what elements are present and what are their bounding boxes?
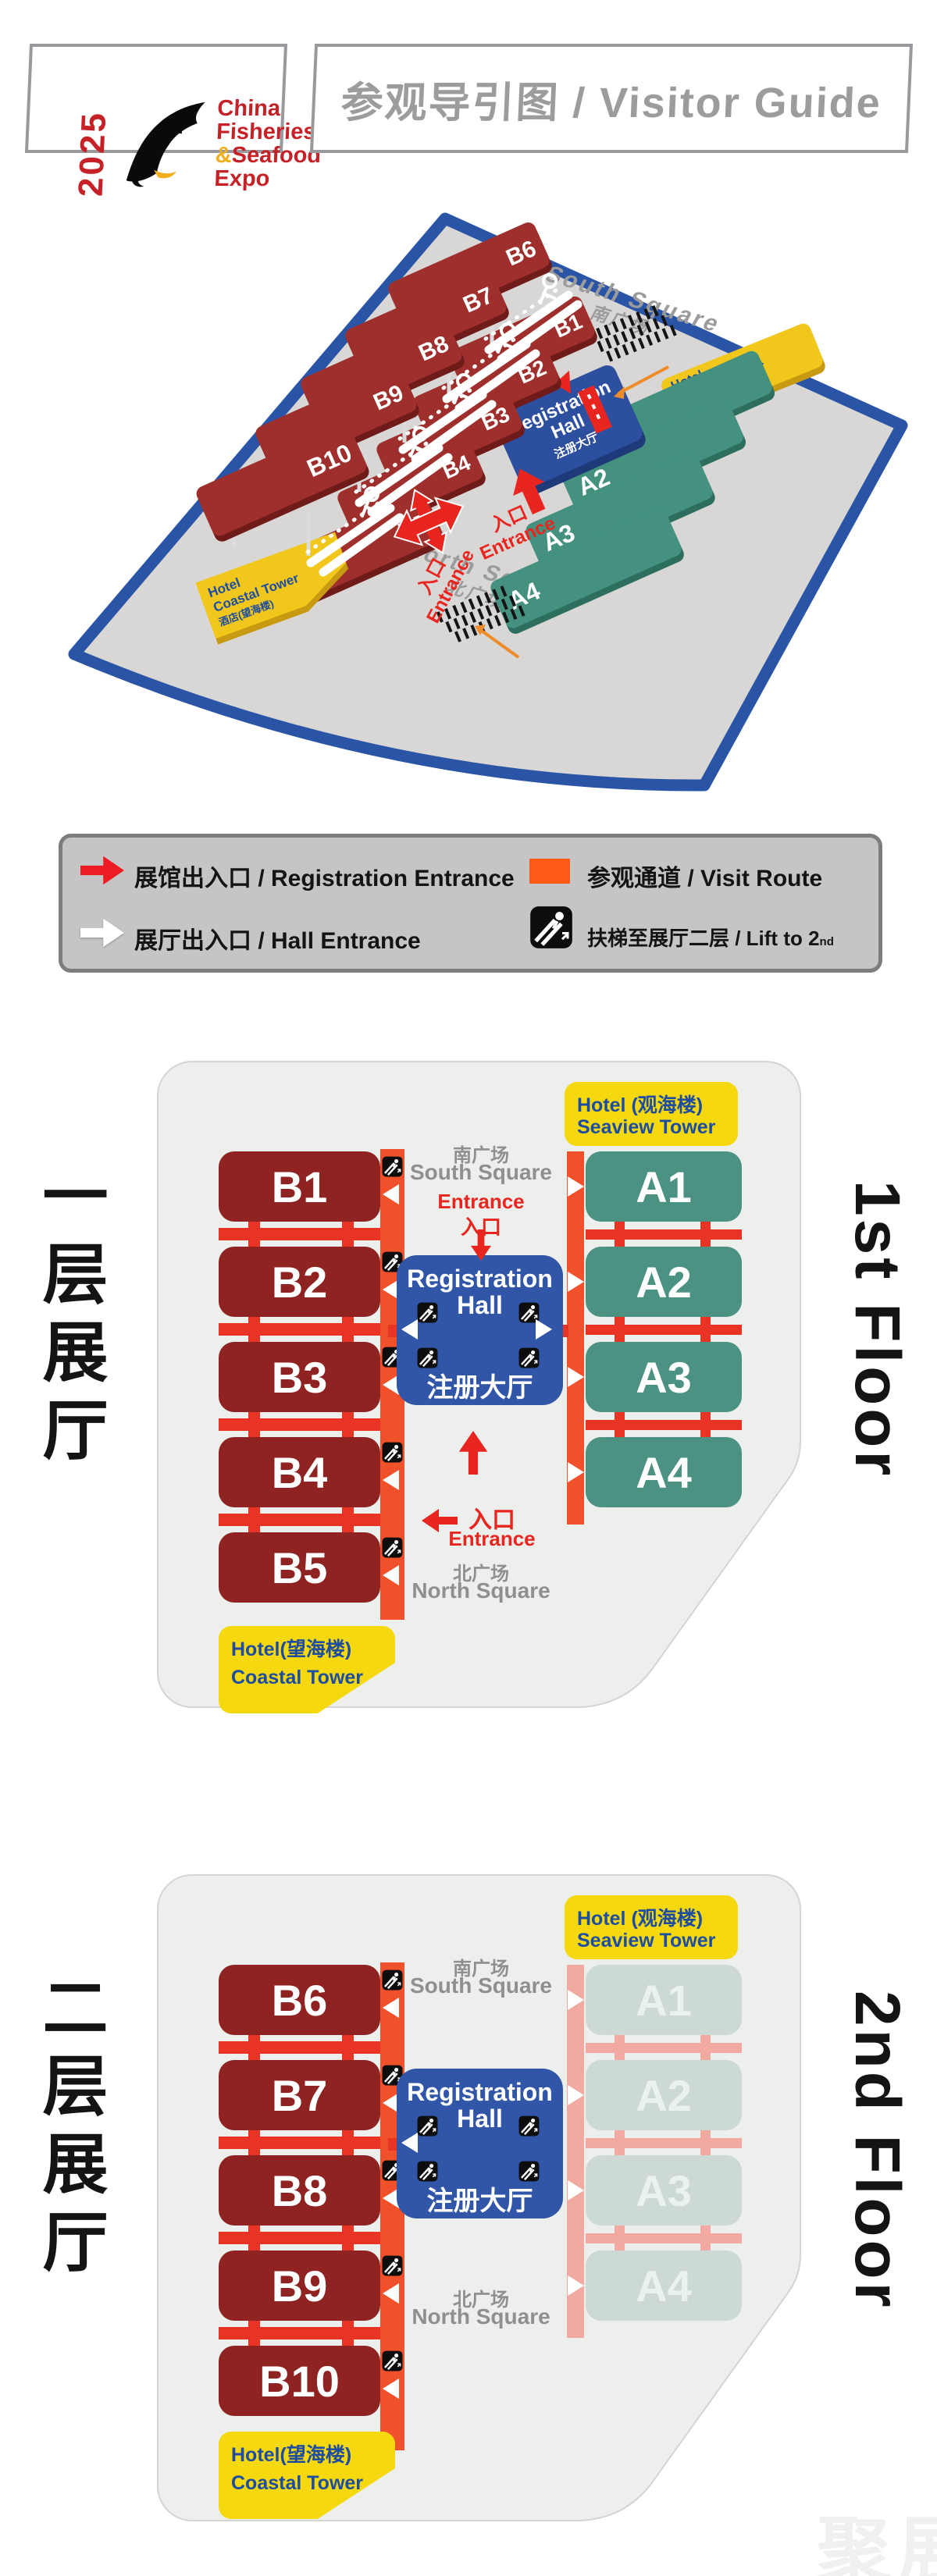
escalator-icon bbox=[518, 2161, 540, 2182]
floor1-hall-b4: B4 bbox=[219, 1437, 380, 1507]
floor1-south-square-en: South Square bbox=[403, 1160, 559, 1185]
floor1-hall-a1: A1 bbox=[586, 1151, 742, 1222]
floor1-hall-b3: B3 bbox=[219, 1342, 380, 1412]
floor1-hall-a3: A3 bbox=[586, 1342, 742, 1412]
floor1-hall-a4: A4 bbox=[586, 1437, 742, 1507]
watermark: 聚展 bbox=[817, 2492, 937, 2576]
floor1-hall-b2: B2 bbox=[219, 1247, 380, 1317]
legend-visit-route-label: 参观通道 / Visit Route bbox=[587, 859, 822, 893]
escalator-icon bbox=[417, 1302, 438, 1323]
hall-entrance-arrow bbox=[383, 2379, 399, 2399]
floor1-hotel-coastal: Hotel(望海楼) Coastal Tower bbox=[219, 1626, 395, 1713]
floor2-south-square-en: South Square bbox=[403, 1973, 559, 1998]
escalator-icon bbox=[382, 2255, 403, 2276]
connector bbox=[219, 1514, 380, 1526]
floor2-hall-a1: A1 bbox=[586, 1965, 742, 2035]
escalator-icon bbox=[382, 1156, 403, 1177]
connector bbox=[586, 1229, 742, 1240]
registration-label-en1: Registration bbox=[397, 2078, 563, 2107]
floor1-side-label: 一层展厅 bbox=[23, 1162, 118, 1474]
overview-3d-map: South Square 南广场 North Square 北广场 Hotel … bbox=[0, 0, 937, 827]
connector bbox=[219, 2327, 380, 2339]
floor2-hotel-seaview: Hotel (观海楼) Seaview Tower bbox=[565, 1895, 738, 1959]
hall-entrance-arrow bbox=[568, 1462, 584, 1482]
registration-label-zh: 注册大厅 bbox=[397, 2179, 563, 2218]
floor1-hall-a2: A2 bbox=[586, 1247, 742, 1317]
registration-label-en1: Registration bbox=[397, 1265, 563, 1293]
connector bbox=[219, 2041, 380, 2054]
floor1-north-square-en: North Square bbox=[403, 1578, 559, 1603]
escalator-icon bbox=[417, 2161, 438, 2182]
legend-hall-entrance-label: 展厅出入口 / Hall Entrance bbox=[134, 921, 421, 955]
floor2-side-label: 二层展厅 bbox=[23, 1973, 118, 2286]
connector bbox=[219, 2232, 380, 2244]
escalator-icon bbox=[382, 1442, 403, 1463]
hall-entrance-arrow bbox=[383, 2283, 399, 2304]
north-entrance-arrow-up bbox=[458, 1431, 488, 1475]
connector bbox=[586, 1420, 742, 1430]
hall-entrance-arrow bbox=[383, 1470, 399, 1490]
legend-visit-route-icon bbox=[529, 859, 570, 884]
hall-entrance-arrow bbox=[536, 1319, 552, 1340]
hall-entrance-arrow bbox=[568, 1990, 584, 2010]
hall-entrance-arrow bbox=[568, 1367, 584, 1387]
floor2-hall-b7: B7 bbox=[219, 2060, 380, 2130]
escalator-icon bbox=[382, 2350, 403, 2371]
connector bbox=[586, 2138, 742, 2148]
escalator-icon bbox=[417, 1347, 438, 1368]
floor2-hall-a2: A2 bbox=[586, 2060, 742, 2130]
connector bbox=[219, 1228, 380, 1240]
connector bbox=[586, 2043, 742, 2053]
hall-entrance-arrow bbox=[568, 2180, 584, 2201]
floor2-hotel-coastal: Hotel(望海楼) Coastal Tower bbox=[219, 2432, 395, 2519]
south-entrance-arrow-down bbox=[469, 1229, 493, 1261]
floor1-hall-b1: B1 bbox=[219, 1151, 380, 1222]
floor2-floor-label: 2nd Floor bbox=[840, 1991, 914, 2311]
escalator-icon bbox=[382, 1537, 403, 1558]
legend-escalator-icon bbox=[529, 906, 573, 949]
hall-entrance-arrow bbox=[383, 1184, 399, 1204]
registration-label-zh: 注册大厅 bbox=[397, 1366, 563, 1404]
hall-entrance-arrow bbox=[383, 1565, 399, 1585]
floor2-hall-b6: B6 bbox=[219, 1965, 380, 2035]
hall-entrance-arrow bbox=[401, 1319, 418, 1340]
visitor-guide-poster: 2025 China Fisheries &Seafood Expo 参观导引图… bbox=[0, 0, 937, 2576]
connector bbox=[586, 2233, 742, 2243]
connector bbox=[586, 1325, 742, 1335]
legend-registration-entrance-label: 展馆出入口 / Registration Entrance bbox=[134, 859, 515, 893]
hall-entrance-arrow bbox=[568, 2085, 584, 2105]
floor1-hall-b5: B5 bbox=[219, 1532, 380, 1603]
floor1-hotel-seaview: Hotel (观海楼) Seaview Tower bbox=[565, 1082, 738, 1146]
hall-entrance-arrow bbox=[568, 1176, 584, 1197]
legend-hall-entrance-icon bbox=[80, 918, 124, 948]
floor2-hall-b9: B9 bbox=[219, 2250, 380, 2321]
legend-lift-label: 扶梯至展厅二层 / Lift to 2nd bbox=[587, 923, 834, 952]
floor2-north-square-en: North Square bbox=[403, 2304, 559, 2329]
hall-entrance-arrow bbox=[401, 2133, 418, 2153]
legend-registration-entrance-icon bbox=[80, 856, 124, 885]
escalator-icon bbox=[518, 1347, 540, 1368]
escalator-icon bbox=[382, 1969, 403, 1991]
connector bbox=[219, 1323, 380, 1336]
hall-entrance-arrow bbox=[383, 1998, 399, 2018]
floor2-hall-b8: B8 bbox=[219, 2155, 380, 2226]
connector bbox=[219, 1418, 380, 1431]
floor2-hall-b10: B10 bbox=[219, 2346, 380, 2416]
escalator-icon bbox=[417, 2115, 438, 2137]
connector bbox=[219, 2137, 380, 2149]
floor1-floor-label: 1st Floor bbox=[840, 1180, 914, 1478]
hall-entrance-arrow bbox=[568, 2275, 584, 2296]
hall-entrance-arrow bbox=[568, 1272, 584, 1292]
escalator-icon bbox=[518, 2115, 540, 2137]
floor2-hall-a4: A4 bbox=[586, 2250, 742, 2321]
floor2-hall-a3: A3 bbox=[586, 2155, 742, 2226]
floor1-north-entrance-en: Entrance bbox=[437, 1527, 547, 1551]
floor1-south-entrance-en: Entrance bbox=[403, 1190, 559, 1214]
